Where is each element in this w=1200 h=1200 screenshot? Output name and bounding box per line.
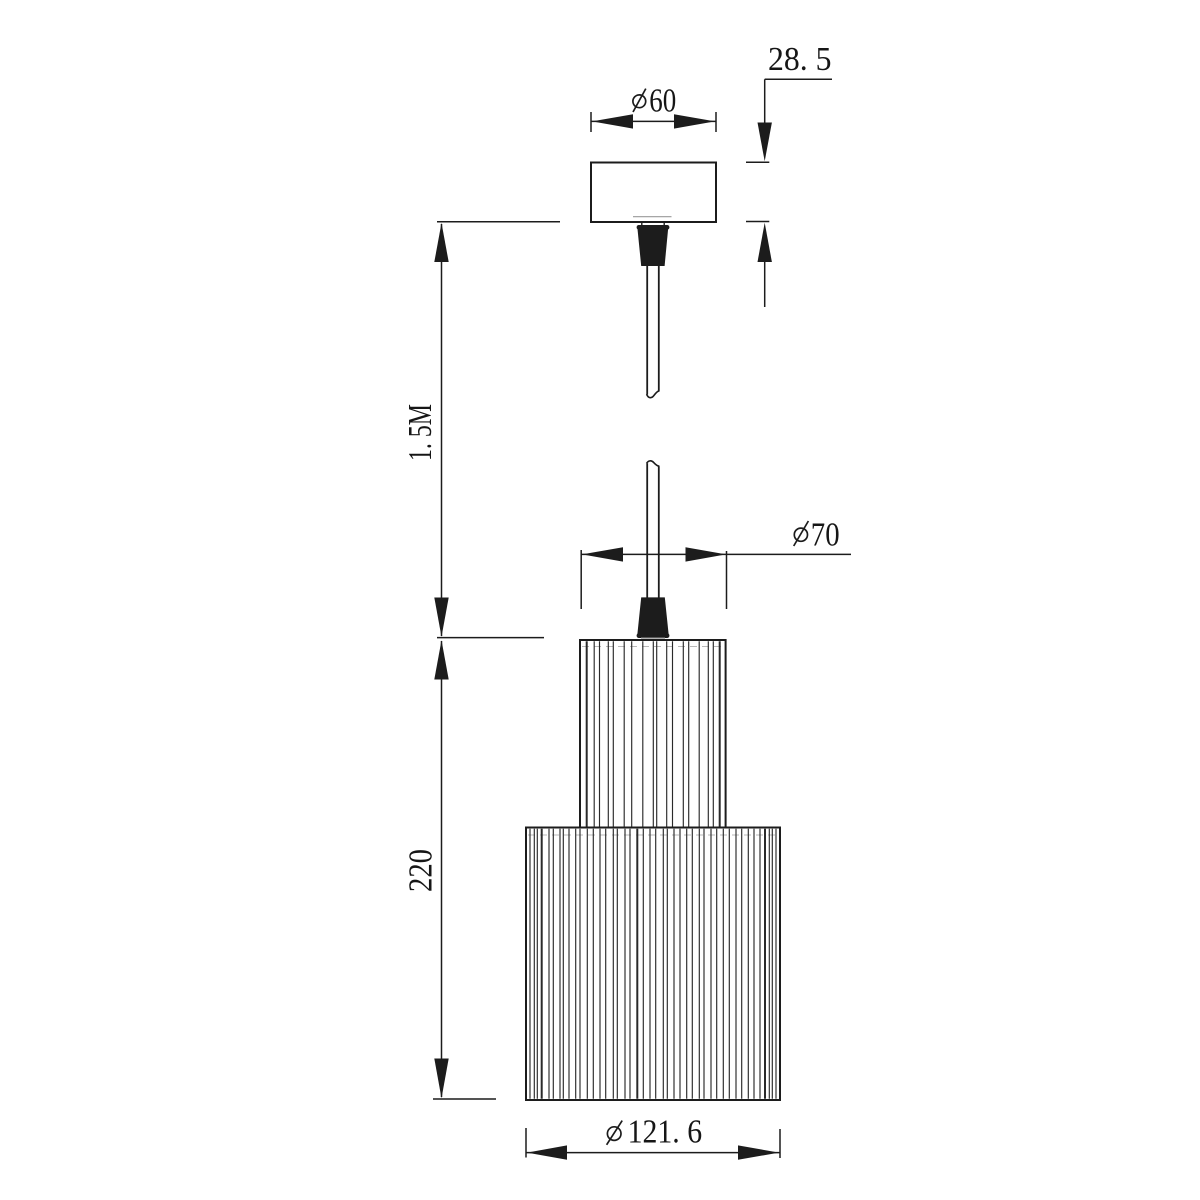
svg-text:70: 70 [811,516,840,553]
svg-text:28. 5: 28. 5 [768,41,832,78]
svg-text:220: 220 [402,849,439,892]
svg-text:60: 60 [649,83,676,120]
svg-text:1. 5M: 1. 5M [402,404,439,461]
svg-text:121. 6: 121. 6 [628,1114,703,1151]
